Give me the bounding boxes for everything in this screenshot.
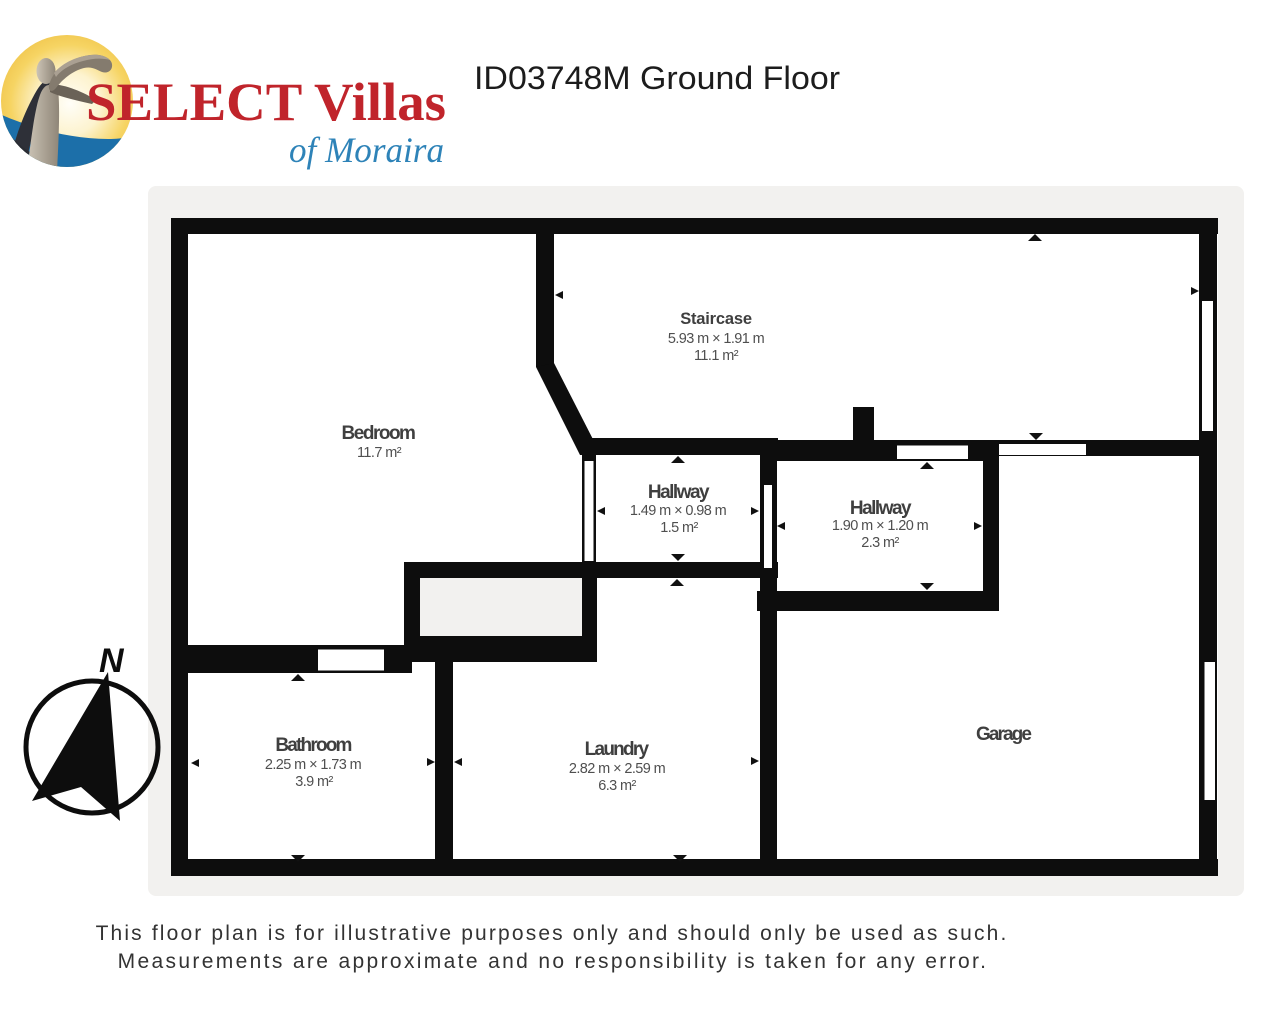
svg-text:Garage: Garage bbox=[976, 724, 1031, 745]
svg-text:N: N bbox=[99, 642, 125, 680]
svg-text:1.49 m × 0.98 m: 1.49 m × 0.98 m bbox=[630, 503, 727, 519]
svg-text:Staircase: Staircase bbox=[680, 310, 752, 328]
svg-text:Bathroom: Bathroom bbox=[275, 735, 351, 756]
svg-text:Bedroom: Bedroom bbox=[342, 423, 416, 444]
svg-text:ID03748M Ground Floor: ID03748M Ground Floor bbox=[474, 60, 840, 96]
svg-text:2.3 m²: 2.3 m² bbox=[861, 535, 899, 551]
svg-text:6.3 m²: 6.3 m² bbox=[598, 778, 636, 794]
svg-text:SELECT Villas: SELECT Villas bbox=[86, 72, 446, 132]
svg-text:2.25 m × 1.73 m: 2.25 m × 1.73 m bbox=[265, 757, 362, 773]
svg-text:11.1 m²: 11.1 m² bbox=[694, 348, 739, 364]
svg-text:1.5 m²: 1.5 m² bbox=[660, 520, 698, 536]
svg-text:Laundry: Laundry bbox=[585, 739, 650, 760]
svg-text:Hallway: Hallway bbox=[850, 498, 912, 519]
svg-text:11.7 m²: 11.7 m² bbox=[357, 445, 402, 461]
svg-text:1.90 m × 1.20 m: 1.90 m × 1.20 m bbox=[832, 518, 929, 534]
svg-text:Hallway: Hallway bbox=[648, 482, 710, 503]
svg-text:5.93 m × 1.91 m: 5.93 m × 1.91 m bbox=[668, 331, 765, 347]
svg-text:3.9 m²: 3.9 m² bbox=[295, 774, 333, 790]
svg-text:2.82 m × 2.59 m: 2.82 m × 2.59 m bbox=[569, 761, 666, 777]
svg-text:of Moraira: of Moraira bbox=[289, 130, 444, 170]
svg-text:Measurements are approximate a: Measurements are approximate and no resp… bbox=[118, 950, 989, 973]
svg-text:This floor plan is for illustr: This floor plan is for illustrative purp… bbox=[96, 922, 1009, 945]
